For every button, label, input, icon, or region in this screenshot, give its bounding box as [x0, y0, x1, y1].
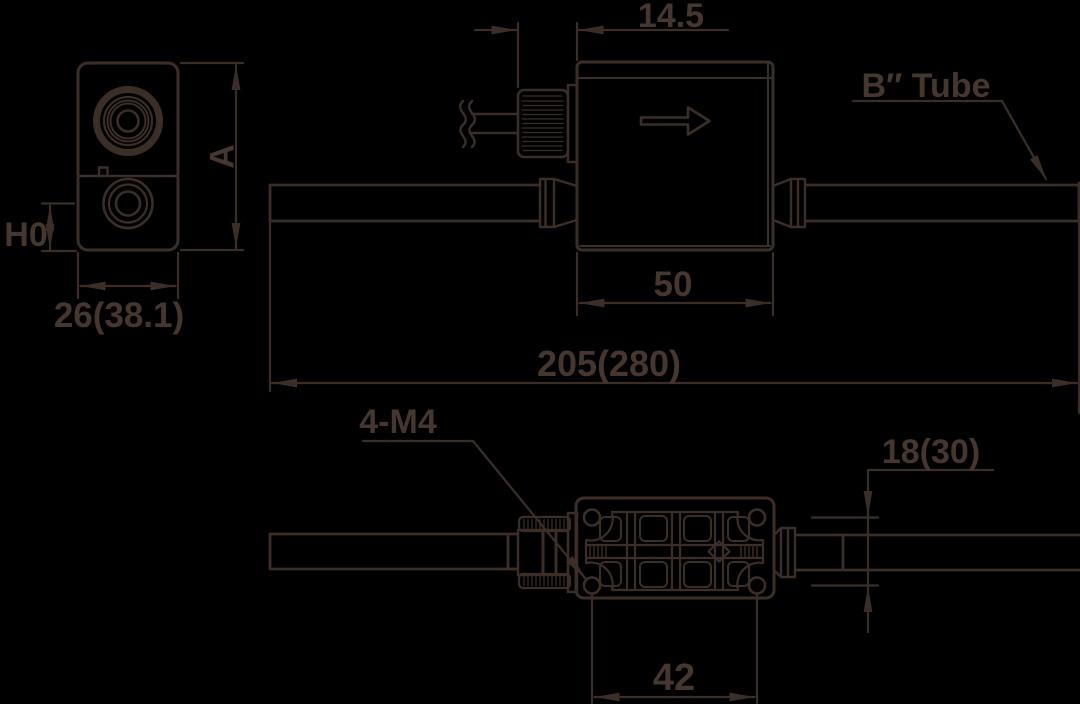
front-port-mid: [109, 185, 147, 223]
bottom-view: [270, 498, 1080, 598]
pocket-bottom-4: [728, 562, 749, 586]
dim-offset-extension-lines: [518, 23, 577, 87]
bottom-clamp-band: [543, 530, 556, 575]
bottom-tube-left: [270, 534, 518, 569]
bottom-tube-right: [795, 535, 1080, 570]
front-dimensions: [42, 63, 243, 298]
bottom-fitting-right: [774, 528, 795, 577]
side-body-outline: [577, 62, 773, 250]
dim-a-label: A: [203, 144, 241, 169]
thread-label-leader: [363, 441, 585, 578]
dim-offset-label: 14.5: [638, 0, 704, 35]
mounting-hole-bottom-right: [749, 578, 765, 594]
front-knurl-ring: [97, 90, 160, 153]
rib-plate-outline: [586, 512, 763, 590]
dim-width-extension-lines: [78, 253, 178, 298]
pocket-top-3: [684, 516, 711, 541]
front-view: [78, 63, 178, 250]
fitting-left: [540, 179, 577, 227]
pocket-top-2: [640, 516, 667, 541]
side-body-inner-lines: [577, 64, 773, 246]
connector-knurl-hatch: [522, 96, 563, 151]
tube-left: [270, 185, 540, 221]
tube-size-label: B″ Tube: [862, 67, 991, 105]
dim-h0-label: H0: [4, 216, 47, 254]
rib-plate-band-hatch: [590, 547, 757, 557]
pocket-bottom-3: [684, 562, 711, 587]
dim-body-length-label: 50: [654, 265, 693, 304]
rib-plate-center-band: [587, 545, 762, 558]
cable-lines: [472, 114, 518, 133]
mounting-hole-top-left: [584, 510, 600, 526]
drawing-canvas: A H0 26(38.1) 14.5 B″ Tube 50 205(280) 4…: [0, 0, 1080, 704]
cable-break-squiggle: [460, 101, 475, 147]
flow-arrow-icon: [641, 108, 710, 135]
dim-width-label: 26(38.1): [54, 296, 184, 335]
dim-tube-offset-label: 18(30): [882, 433, 980, 471]
thread-label: 4-M4: [359, 403, 437, 441]
fitting-right: [773, 179, 805, 227]
bottom-knurl-strip-bottom-hatch: [524, 577, 564, 586]
front-ring-4: [118, 111, 139, 132]
front-port-inner: [116, 192, 140, 216]
front-ring-3: [111, 104, 146, 139]
tube-right: [805, 183, 1079, 221]
mounting-hole-bottom-left: [584, 578, 600, 594]
dim-pitch-label: 42: [653, 657, 695, 699]
tube-label-leader: [853, 101, 1046, 179]
front-port-outer: [104, 179, 153, 228]
pocket-bottom-2: [640, 562, 667, 587]
front-body-divider: [78, 168, 178, 177]
front-ring-2: [108, 101, 149, 142]
pocket-top-4: [728, 517, 749, 541]
dim-overall-label: 205(280): [537, 343, 681, 384]
mounting-hole-top-right: [749, 510, 765, 526]
